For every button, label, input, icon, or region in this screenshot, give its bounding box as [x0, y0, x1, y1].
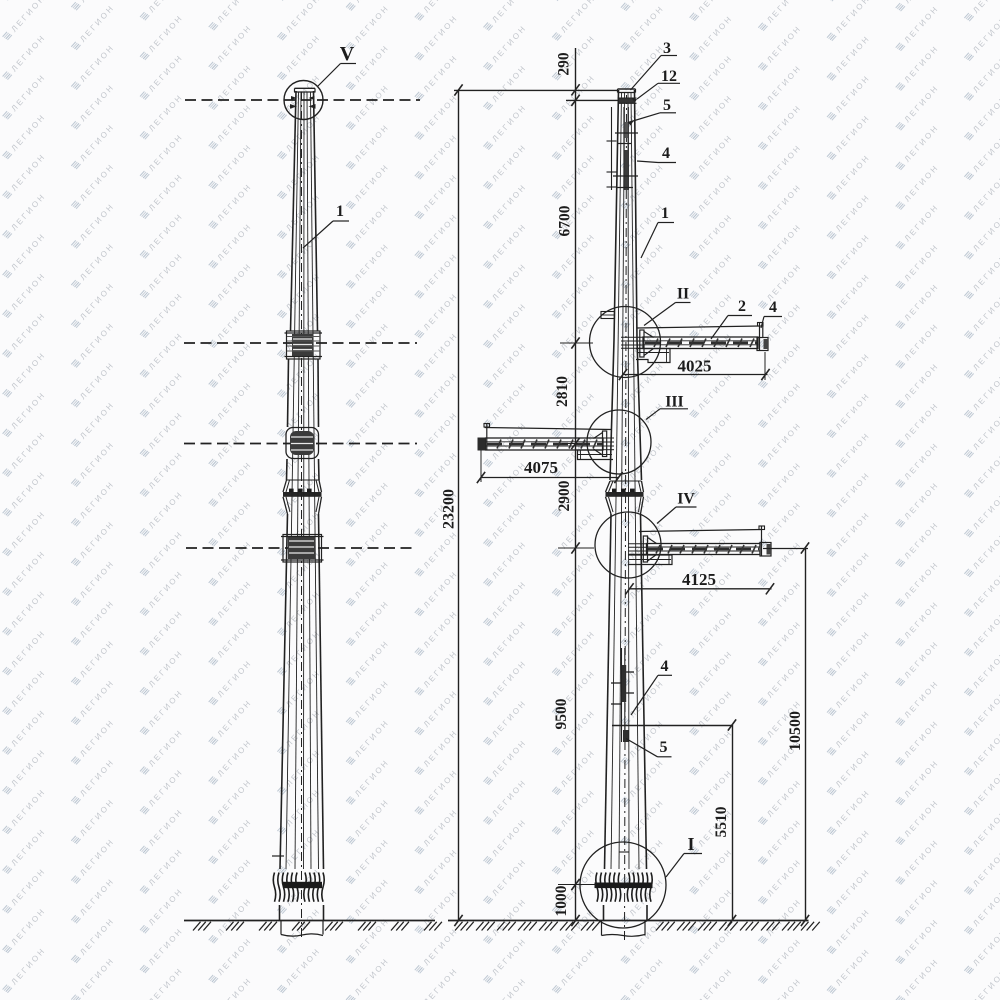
svg-text:5: 5 [663, 97, 671, 114]
svg-text:6700: 6700 [557, 205, 574, 236]
svg-text:2: 2 [738, 298, 746, 315]
svg-text:9500: 9500 [553, 698, 570, 729]
svg-text:I: I [687, 834, 694, 854]
svg-text:3: 3 [663, 40, 671, 57]
svg-text:III: III [665, 394, 683, 411]
svg-text:1: 1 [661, 205, 669, 222]
svg-text:10500: 10500 [787, 711, 804, 751]
svg-text:4: 4 [661, 658, 669, 675]
svg-text:5: 5 [660, 739, 668, 756]
svg-text:II: II [677, 286, 689, 303]
svg-text:4: 4 [662, 145, 670, 162]
svg-text:4125: 4125 [682, 570, 716, 589]
svg-text:1000: 1000 [553, 885, 570, 916]
svg-text:4: 4 [769, 299, 777, 316]
svg-text:12: 12 [661, 68, 677, 85]
svg-text:IV: IV [677, 491, 695, 508]
svg-text:290: 290 [556, 52, 573, 76]
svg-text:2900: 2900 [556, 480, 573, 511]
svg-text:4025: 4025 [678, 357, 712, 376]
svg-text:23200: 23200 [441, 489, 458, 529]
svg-text:5510: 5510 [713, 806, 730, 837]
svg-text:4075: 4075 [524, 458, 558, 477]
svg-text:2810: 2810 [554, 376, 571, 407]
svg-text:1: 1 [336, 203, 344, 220]
svg-text:V: V [340, 43, 355, 65]
